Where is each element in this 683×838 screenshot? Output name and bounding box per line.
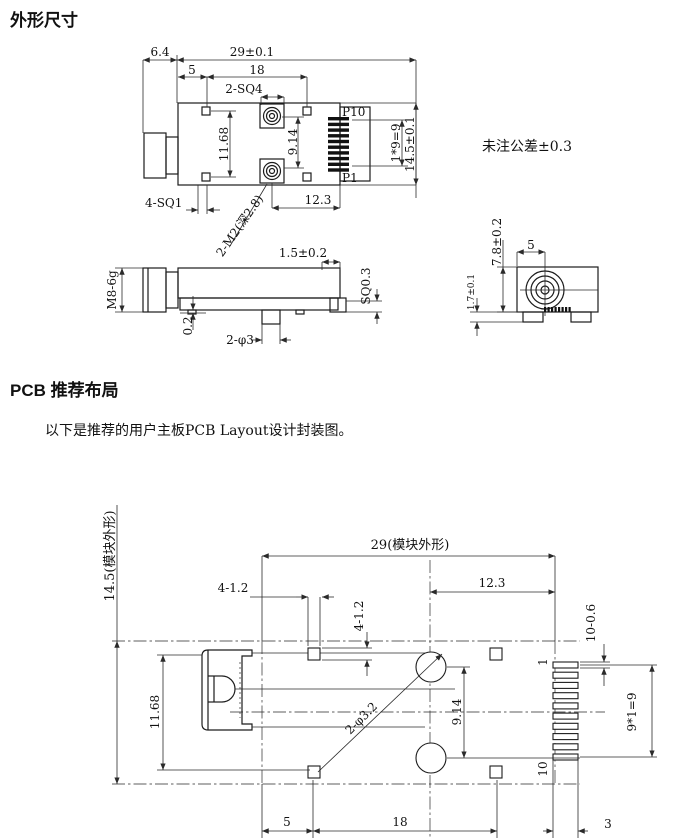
label-pad-last: 10 xyxy=(536,761,550,776)
dim-sq1-offset: 5 xyxy=(188,63,196,77)
dim-pad-pitch: 9*1=9 xyxy=(625,693,639,732)
dim-connector-length: 6.4 xyxy=(150,45,169,59)
label-posts: 2-SQ4 xyxy=(225,82,263,96)
drawing-pcb-layout: 14.5(模块外形) 29(模块外形) 4-1.2 12.3 4-1.2 10-… xyxy=(103,505,657,838)
dim-foot-height: 1.7±0.1 xyxy=(467,274,477,310)
drawing-end-view: 7.8±0.2 5 1.7±0.1 xyxy=(467,218,598,336)
drawing-top-view: 6.4 29±0.1 5 18 2-SQ4 P10 P1 1*9=9 14.5±… xyxy=(143,45,417,259)
edge-pads xyxy=(553,662,578,760)
dim-body-height: 14.5±0.1 xyxy=(403,116,417,172)
dim-bottom-3: 3 xyxy=(604,817,612,831)
dim-pin-pitch: 1*9=9 xyxy=(389,124,403,163)
dim-tail: 1.5±0.2 xyxy=(279,246,327,260)
label-corner-pads: 4-SQ1 xyxy=(145,196,182,210)
dim-hole-offset: 12.3 xyxy=(479,576,506,590)
dim-body-width: 29±0.1 xyxy=(230,45,274,59)
dim-post-offset: 12.3 xyxy=(305,193,332,207)
dim-pad-square: SQ0.3 xyxy=(359,267,373,304)
technical-drawing: 6.4 29±0.1 5 18 2-SQ4 P10 P1 1*9=9 14.5±… xyxy=(0,0,683,838)
edge-pins xyxy=(544,307,571,312)
dim-bottom-5: 5 xyxy=(283,815,291,829)
label-thread: M8-6g xyxy=(105,270,119,310)
dim-corner-pad-width: 4-1.2 xyxy=(218,581,249,595)
label-pad-first: 1 xyxy=(536,658,550,666)
dim-hole-span: 9.14 xyxy=(450,698,464,725)
dim-bottom-18: 18 xyxy=(392,815,407,829)
label-bottom-pins: 2-φ3 xyxy=(226,333,254,347)
dim-post-span: 9.14 xyxy=(286,128,300,155)
dim-module-width: 29(模块外形) xyxy=(371,538,450,553)
datasheet-page: 外形尺寸 未注公差±0.3 PCB 推荐布局 以下是推荐的用户主板PCB Lay… xyxy=(0,0,683,838)
dim-module-height: 14.5(模块外形) xyxy=(103,510,118,601)
dim-corner-pad-height: 4-1.2 xyxy=(352,601,366,632)
dim-sq1-vspan: 11.68 xyxy=(217,127,231,161)
label-pin-top: P10 xyxy=(342,105,365,119)
dim-end-height: 7.8±0.2 xyxy=(490,218,504,266)
label-screw-holes: 2-M2(深2.8) xyxy=(213,192,266,259)
label-pin-bottom: P1 xyxy=(342,171,358,185)
dim-center-offset: 5 xyxy=(527,238,535,252)
drawing-side-view: M8-6g 1.5±0.2 SQ0.3 0.2 2-φ3 xyxy=(105,246,382,347)
dim-pad-size: 10-0.6 xyxy=(584,604,598,642)
dim-standoff: 0.2 xyxy=(181,316,195,335)
pin-header-pins xyxy=(328,117,349,172)
dim-sq1-span: 18 xyxy=(249,63,264,77)
dim-left-vspan: 11.68 xyxy=(148,695,162,729)
